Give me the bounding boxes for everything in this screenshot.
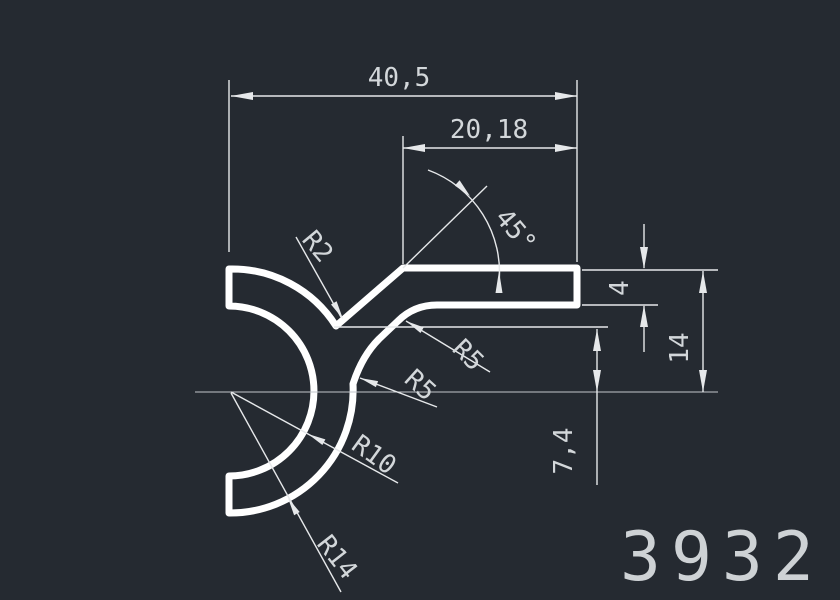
arrow-arm-height-top (699, 271, 707, 293)
label-thickness: 4 (605, 280, 635, 296)
angle-reference-line (403, 186, 487, 268)
label-r10: R10 (346, 429, 402, 481)
label-r14: R14 (310, 530, 363, 585)
arrow-offset-top (593, 329, 601, 351)
part-number: 3932 (620, 518, 824, 597)
arrow-overall-width-right (555, 92, 577, 100)
arrow-overall-width-left (231, 92, 253, 100)
arrow-r14 (288, 498, 300, 515)
arrow-r10 (308, 434, 325, 445)
profile-outline (229, 268, 577, 513)
arrow-upper-width-right (555, 144, 577, 152)
arrow-angle-upper (455, 180, 470, 196)
arrow-angle-lower (496, 271, 503, 293)
radius-leaders (231, 237, 490, 592)
label-r2: R2 (296, 225, 339, 268)
cad-drawing-canvas: 40,5 20,18 45° R2 R5 R5 R10 R14 4 14 7,4… (0, 0, 840, 600)
label-arm-height: 14 (665, 332, 695, 363)
label-overall-width: 40,5 (368, 63, 431, 93)
arrow-thickness-bottom (640, 305, 648, 327)
arrow-arm-height-bottom (699, 370, 707, 392)
label-angle: 45° (489, 203, 542, 258)
technical-drawing: 40,5 20,18 45° R2 R5 R5 R10 R14 4 14 7,4… (0, 0, 840, 600)
arrow-r5-lower (360, 378, 378, 387)
dimension-texts: 40,5 20,18 45° R2 R5 R5 R10 R14 4 14 7,4 (296, 63, 695, 585)
arrow-offset-bottom (593, 370, 601, 392)
arrow-thickness-top (640, 247, 648, 269)
arrow-upper-width-left (403, 144, 425, 152)
label-upper-width: 20,18 (450, 115, 528, 145)
label-r5-upper: R5 (446, 334, 489, 377)
label-offset: 7,4 (549, 428, 579, 475)
label-r5-lower: R5 (398, 364, 441, 407)
